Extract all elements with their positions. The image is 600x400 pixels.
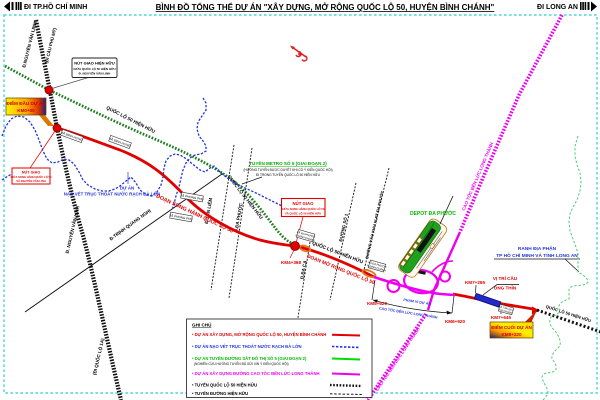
svg-text:ĐIỂM ĐẦU DỰ ÁN: ĐIỂM ĐẦU DỰ ÁN (6, 100, 46, 106)
svg-text:KM6+920: KM6+920 (445, 319, 465, 324)
svg-text:GIỮA SONG HÀNH QUỐC LỘ 50: GIỮA SONG HÀNH QUỐC LỘ 50 (282, 206, 325, 211)
svg-text:RANH ĐỊA PHẬN: RANH ĐỊA PHẬN (518, 245, 557, 252)
svg-text:DỰ ÁN: DỰ ÁN (120, 186, 134, 191)
svg-text:• TUYẾN ĐƯỜNG HIỆN HỮU: • TUYẾN ĐƯỜNG HIỆN HỮU (192, 391, 248, 396)
svg-text:VỊ TRÍ CẦU: VỊ TRÍ CẦU (493, 274, 518, 281)
svg-text:• TUYẾN QUỐC LỘ 50 HIỆN HỮU: • TUYẾN QUỐC LỘ 50 HIỆN HỮU (192, 383, 257, 388)
svg-text:GIỮA QUỐC LỘ 50 HIỆN HỮU: GIỮA QUỐC LỘ 50 HIỆN HỮU (73, 66, 115, 71)
svg-text:• DỰ ÁN TUYẾN ĐƯỜNG SẮT ĐÔ THỊ: • DỰ ÁN TUYẾN ĐƯỜNG SẮT ĐÔ THỊ SỐ 5 (GIA… (192, 356, 307, 361)
svg-text:ĐI LONG AN: ĐI LONG AN (537, 4, 578, 11)
svg-text:Đ. NGUYỄN VĂN LINH: Đ. NGUYỄN VĂN LINH (79, 70, 111, 75)
svg-text:DEPOT ĐA PHƯỚC: DEPOT ĐA PHƯỚC (410, 209, 456, 217)
svg-text:(NGHIÊN CỨU HƯỚNG TUYẾN ĐÃ GỬI: (NGHIÊN CỨU HƯỚNG TUYẾN ĐÃ GỬI XIN Ý KIẾ… (194, 361, 289, 366)
svg-text:(HƯỚNG TUYẾN ĐƯỢC DUYỆT KHI CÓ: (HƯỚNG TUYẾN ĐƯỢC DUYỆT KHI CÓ Ý KIẾN QU… (243, 167, 332, 172)
svg-text:• DỰ ÁN XÂY DỰNG, MỞ RỘNG QUỐC: • DỰ ÁN XÂY DỰNG, MỞ RỘNG QUỐC LỘ 50, HU… (192, 332, 326, 337)
svg-text:ĐIỂM CUỐI DỰ ÁN: ĐIỂM CUỐI DỰ ÁN (491, 324, 532, 330)
svg-text:NÚT GIAO: NÚT GIAO (292, 201, 314, 206)
svg-text:NẠO VÉT TRỤC THOÁT NƯỚC RẠCH B: NẠO VÉT TRỤC THOÁT NƯỚC RẠCH BÀ LỚN (64, 192, 161, 197)
svg-text:BÌNH ĐỒ TỔNG THỂ DỰ ÁN "XÂY DỰ: BÌNH ĐỒ TỔNG THỂ DỰ ÁN "XÂY DỰNG, MỞ RỘN… (156, 2, 495, 12)
svg-text:ĐI TRONG TUYẾN QUỐC LỘ 50 HIỆN: ĐI TRONG TUYẾN QUỐC LỘ 50 HIỆN HỮU (256, 172, 321, 177)
svg-text:• DỰ ÁN NẠO VÉT TRỤC THOÁT NƯỚ: • DỰ ÁN NẠO VÉT TRỤC THOÁT NƯỚC RẠCH BÀ … (192, 344, 302, 349)
svg-text:KM8+220: KM8+220 (501, 332, 521, 337)
svg-text:NÚT GIAO: NÚT GIAO (22, 170, 41, 175)
svg-text:VÀ QUỐC LỘ 50 HIỆN HỮU: VÀ QUỐC LỘ 50 HIỆN HỮU (285, 211, 321, 216)
svg-text:• DỰ ÁN XÂY DỰNG ĐƯỜNG CAO TỐC: • DỰ ÁN XÂY DỰNG ĐƯỜNG CAO TỐC BẾN LỨC-L… (192, 371, 320, 376)
svg-text:KM0+00: KM0+00 (17, 108, 35, 113)
svg-text:KM7+645: KM7+645 (491, 315, 511, 320)
svg-text:KM7+265: KM7+265 (465, 280, 485, 285)
svg-text:NÚT GIAO HIỆN HỮU: NÚT GIAO HIỆN HỮU (74, 61, 115, 66)
svg-text:KM4+368: KM4+368 (281, 260, 301, 265)
svg-text:GHI CHÚ: GHI CHÚ (192, 322, 212, 328)
svg-text:TUYẾN METRO SỐ 5 (GIAI ĐOẠN 2): TUYẾN METRO SỐ 5 (GIAI ĐOẠN 2) (249, 160, 327, 166)
svg-text:KM5+620: KM5+620 (367, 301, 387, 306)
